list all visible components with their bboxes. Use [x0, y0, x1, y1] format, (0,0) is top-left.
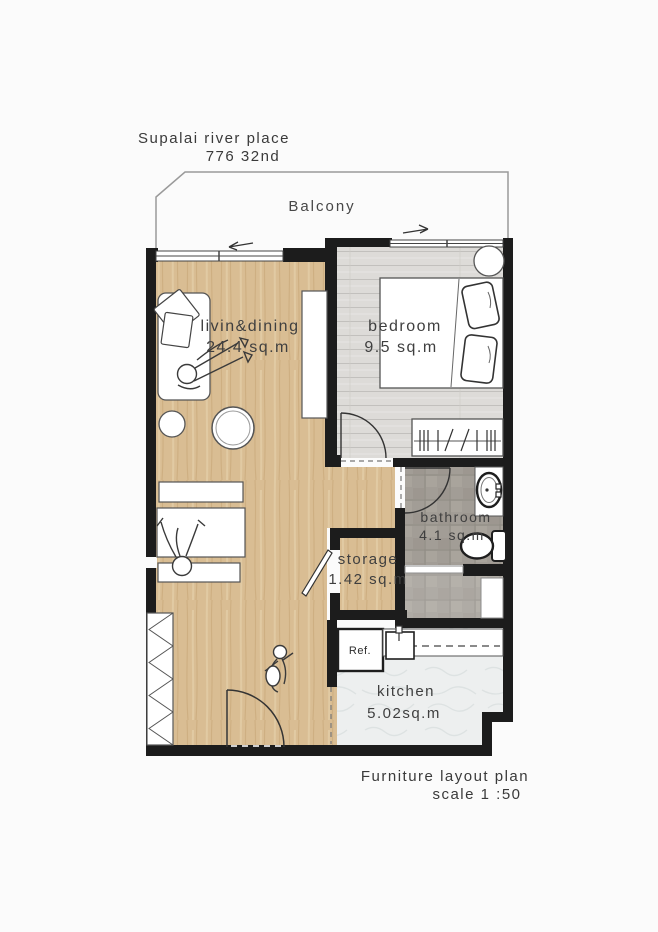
- project-unit: 776 32nd: [206, 148, 281, 165]
- dining-bench-bottom: [158, 563, 240, 582]
- bathroom-label: bathroom: [420, 509, 491, 525]
- dining-bench-top: [159, 482, 243, 502]
- wall-joint-gap: [146, 557, 157, 568]
- living-area: 24.4 sq.m: [206, 339, 290, 356]
- tv-cabinet: [302, 291, 327, 418]
- bedroom-slide-arrow-icon: [403, 225, 428, 233]
- bedroom-label: bedroom: [368, 318, 442, 335]
- living-label: livin&dining: [201, 318, 300, 335]
- shower-tray: [481, 578, 503, 618]
- shoe-cabinet: [147, 613, 173, 745]
- kitchen-counter: [383, 626, 503, 659]
- sofa-pillow-2: [161, 312, 193, 348]
- footer-title: Furniture layout plan: [361, 768, 529, 785]
- coffee-table: [212, 407, 254, 449]
- wardrobe: [412, 419, 503, 456]
- storage-label: storage: [338, 551, 399, 568]
- fridge: Ref.: [338, 629, 383, 671]
- living-sliding-door: [156, 251, 283, 261]
- bed-pillow-2: [460, 334, 497, 384]
- living-slide-arrow-icon: [229, 242, 253, 250]
- project-title: Supalai river place: [138, 130, 290, 147]
- bedroom-area: 9.5 sq.m: [364, 339, 437, 356]
- fridge-label: Ref.: [349, 645, 371, 657]
- kitchen-label: kitchen: [377, 683, 435, 700]
- footer-scale: scale 1 :50: [432, 786, 521, 803]
- dining-set: [157, 482, 245, 582]
- balcony-label: Balcony: [288, 198, 355, 215]
- bathroom-area: 4.1 sq.m: [419, 527, 485, 543]
- kitchen-area: 5.02sq.m: [367, 705, 441, 722]
- dining-table: [157, 508, 245, 557]
- storage-area: 1.42 sq.m: [328, 571, 407, 588]
- sofa: [154, 289, 210, 400]
- floor-plan-drawing: Balcony: [0, 0, 658, 932]
- sink-faucet: [496, 484, 501, 489]
- bedside-table: [474, 246, 504, 276]
- side-stool: [159, 411, 185, 437]
- floor-plan-page: Balcony: [0, 0, 658, 932]
- shower-partition: [405, 566, 463, 573]
- kitchen-entry-floor: [327, 687, 337, 745]
